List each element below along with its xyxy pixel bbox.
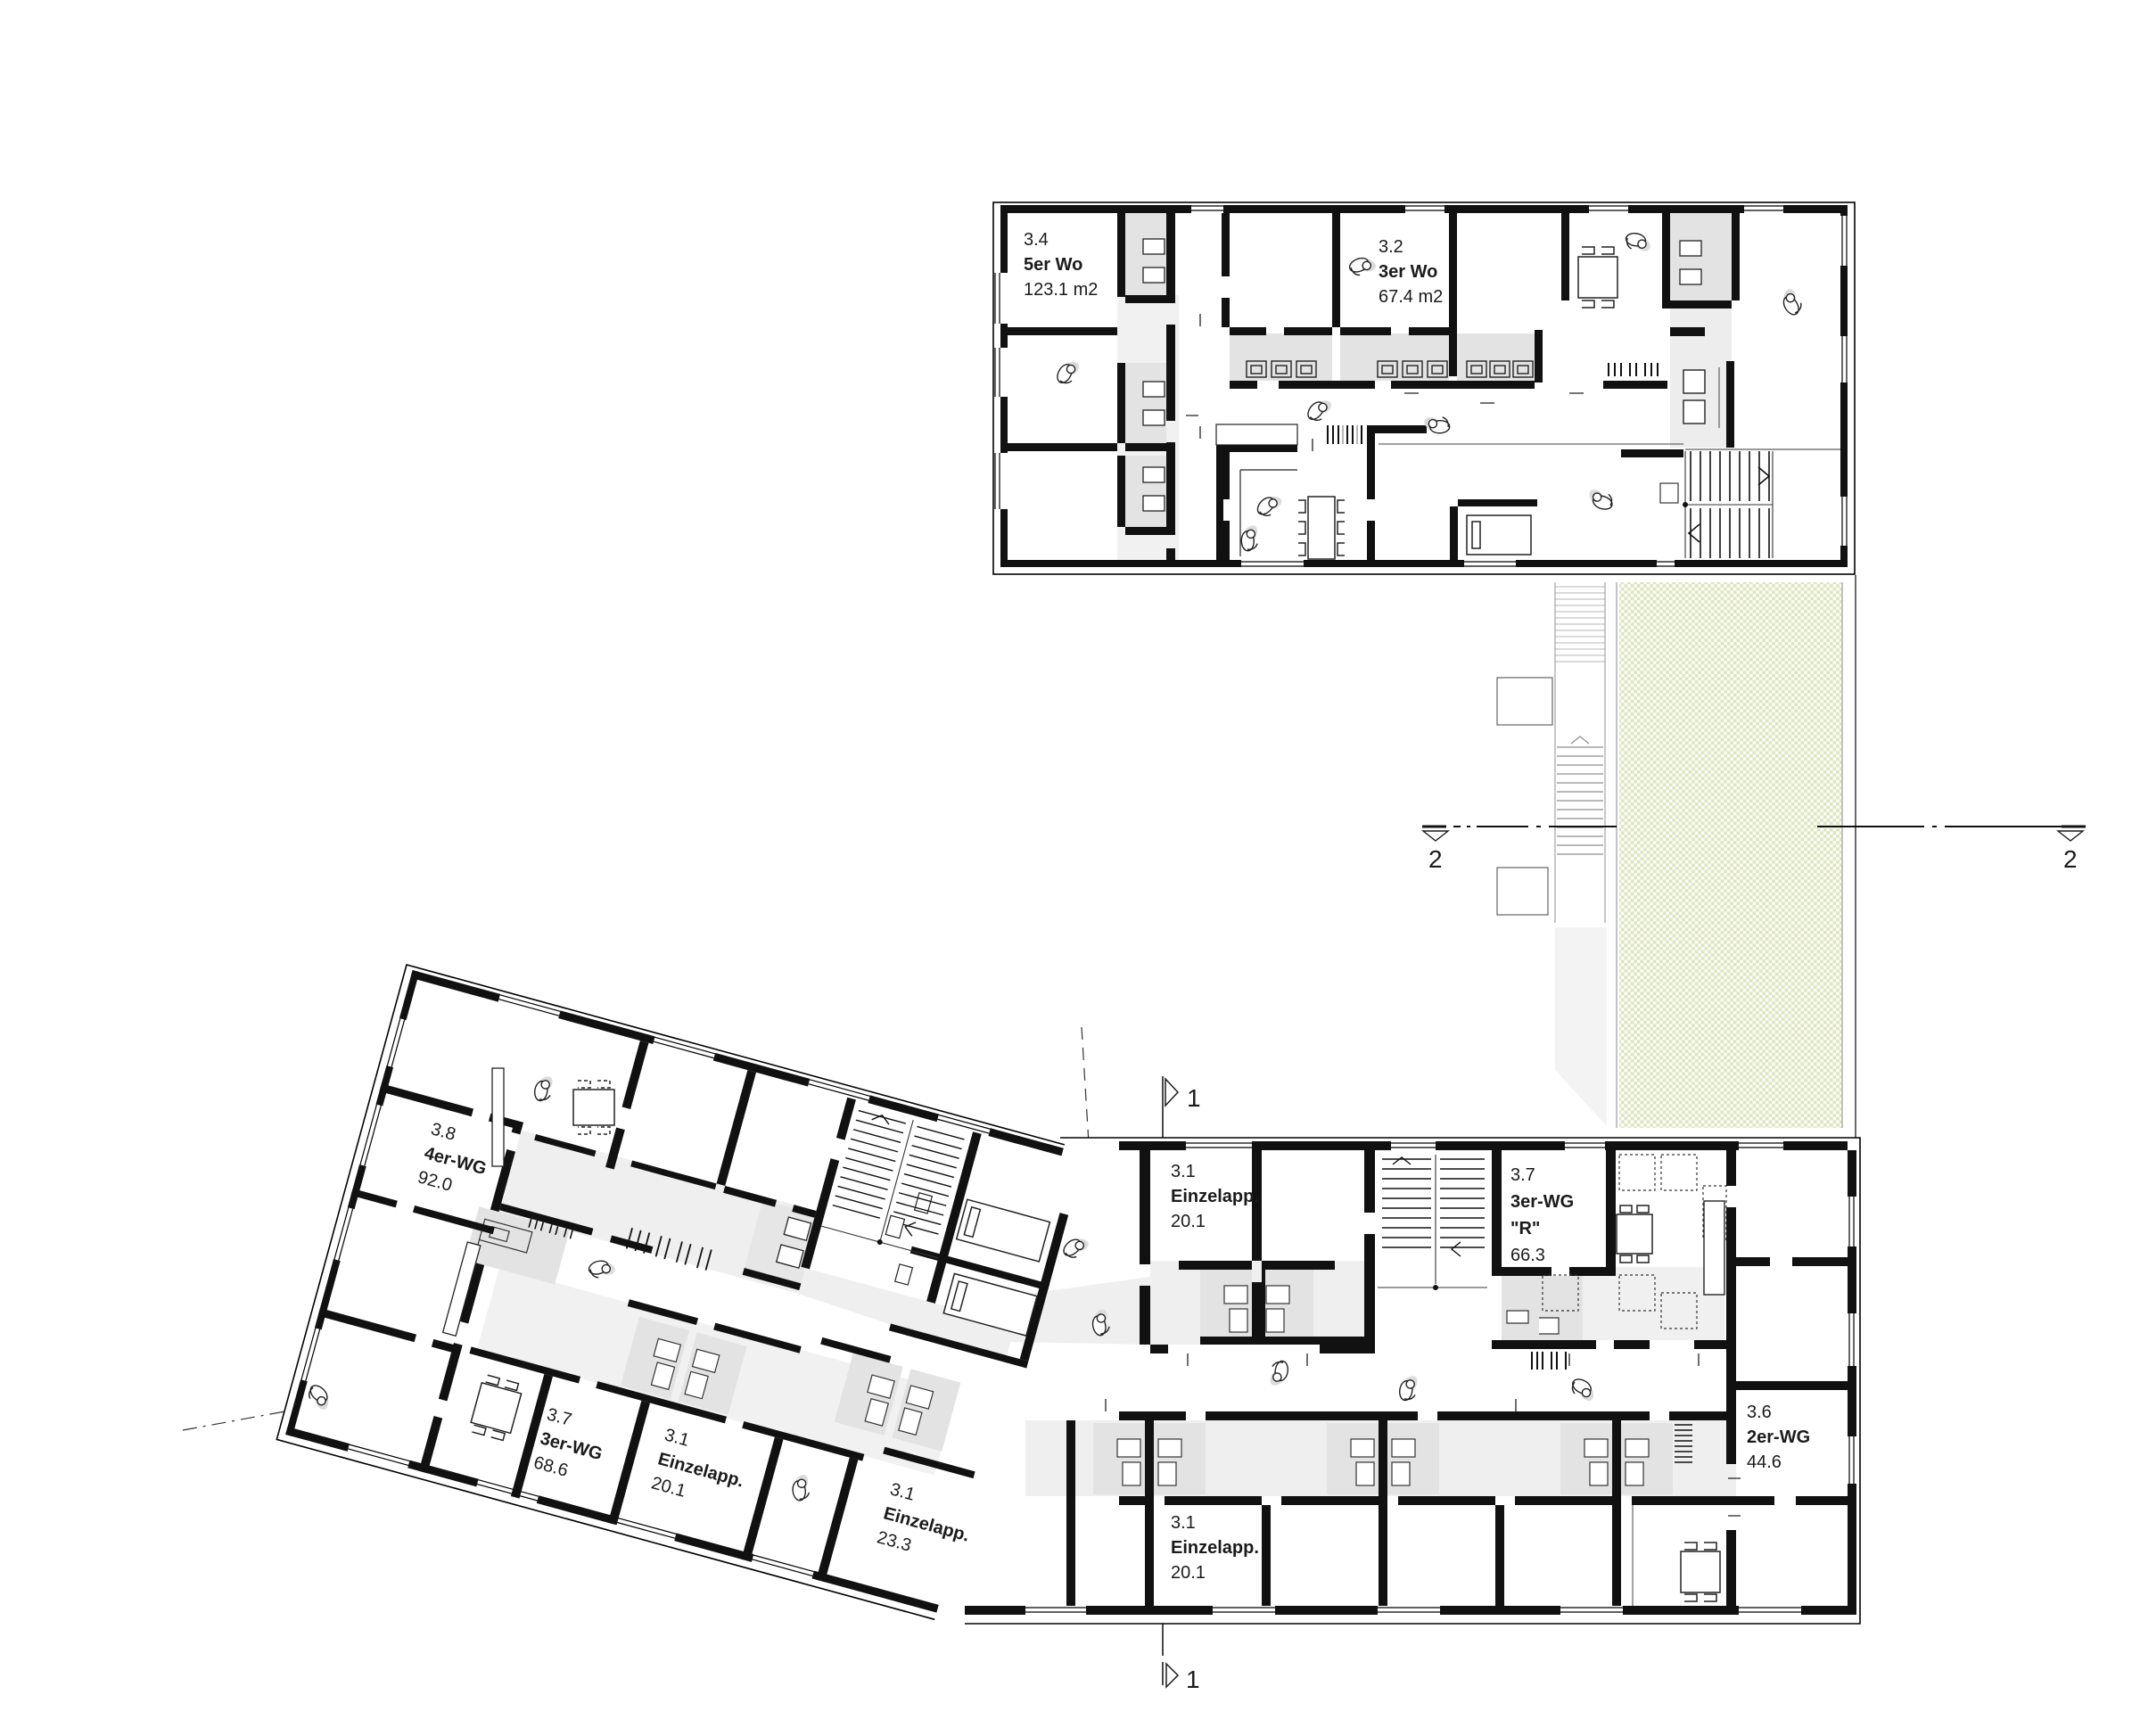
svg-text:3er-WG: 3er-WG [1510, 1192, 1574, 1212]
svg-text:2: 2 [1428, 845, 1443, 873]
svg-text:Einzelapp.: Einzelapp. [1171, 1538, 1259, 1558]
svg-text:3.4: 3.4 [1024, 230, 1049, 250]
svg-text:Einzelapp.: Einzelapp. [1171, 1187, 1259, 1206]
svg-text:3.1: 3.1 [1171, 1513, 1196, 1533]
svg-text:66.3: 66.3 [1510, 1246, 1545, 1265]
svg-text:2: 2 [2063, 845, 2078, 873]
svg-text:123.1 m2: 123.1 m2 [1024, 280, 1098, 300]
svg-text:67.4 m2: 67.4 m2 [1379, 287, 1443, 307]
svg-text:44.6: 44.6 [1747, 1452, 1782, 1472]
svg-text:3.2: 3.2 [1379, 237, 1403, 257]
svg-text:1: 1 [1186, 1666, 1200, 1693]
svg-text:3.1: 3.1 [1171, 1162, 1196, 1181]
svg-text:3.7: 3.7 [1510, 1165, 1535, 1185]
svg-text:20.1: 20.1 [1171, 1212, 1206, 1231]
svg-text:3er Wo: 3er Wo [1379, 262, 1437, 282]
svg-text:"R": "R" [1510, 1219, 1540, 1238]
svg-text:20.1: 20.1 [1171, 1563, 1206, 1583]
svg-text:2er-WG: 2er-WG [1747, 1427, 1810, 1447]
svg-text:5er Wo: 5er Wo [1024, 255, 1082, 275]
svg-text:1: 1 [1187, 1084, 1201, 1112]
svg-text:3.6: 3.6 [1747, 1403, 1772, 1422]
